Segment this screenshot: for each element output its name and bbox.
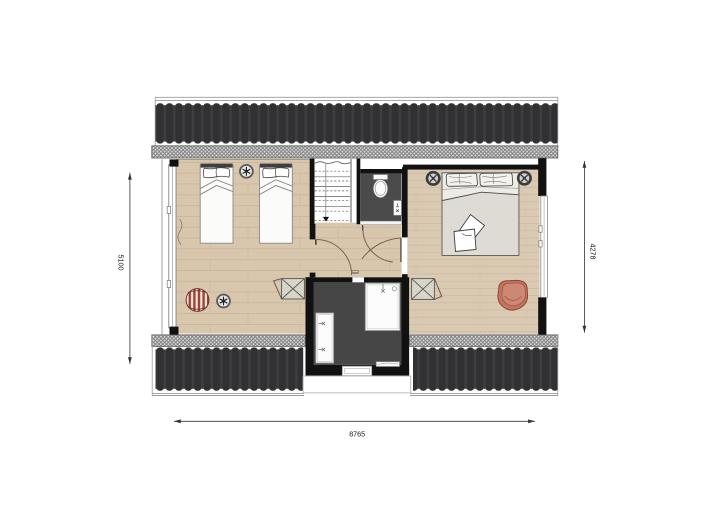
svg-text:4278: 4278 xyxy=(588,244,597,260)
svg-text:8765: 8765 xyxy=(349,430,365,439)
svg-text:5100: 5100 xyxy=(117,255,126,271)
